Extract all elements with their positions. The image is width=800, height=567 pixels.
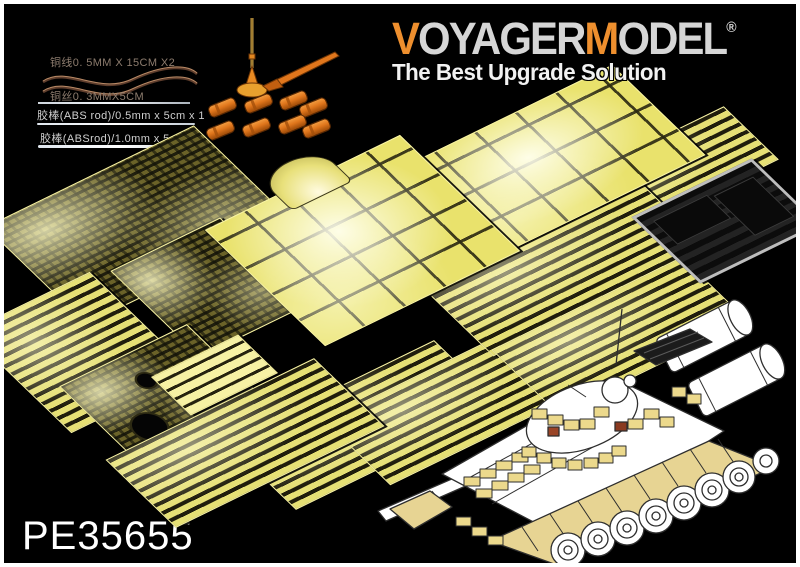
abs-rod-piece xyxy=(205,119,237,142)
tank-illustration xyxy=(372,289,800,567)
film-panel xyxy=(714,177,795,236)
straight-wire-icon xyxy=(38,102,190,104)
registered-mark: ® xyxy=(726,19,736,36)
abs-rod-piece xyxy=(241,116,273,139)
logo-letters-oyager: OYAGER xyxy=(418,13,584,64)
pe-dome-part xyxy=(257,147,353,211)
red-part xyxy=(548,427,559,436)
logo-letter-v: V xyxy=(392,13,418,64)
abs-rod-05-label: 胶棒(ABS rod)/0.5mm x 5cm x 1 xyxy=(37,107,205,123)
red-part xyxy=(615,422,627,431)
brand-tagline: The Best Upgrade Solution xyxy=(392,59,780,86)
rod-tool-icon xyxy=(259,44,344,92)
abs-rod-05-icon xyxy=(37,123,195,125)
brand-logo: VOYAGERMODEL® xyxy=(392,16,764,61)
brand-block: VOYAGERMODEL® The Best Upgrade Solution xyxy=(392,16,792,86)
product-image: 铜线0. 5MM X 15CM X2 铜丝0. 3MMX5CM 胶棒(ABS r… xyxy=(0,0,800,567)
antenna xyxy=(616,309,622,365)
logo-letter-m: M xyxy=(584,13,617,64)
logo-letters-odel: ODEL xyxy=(617,13,726,64)
